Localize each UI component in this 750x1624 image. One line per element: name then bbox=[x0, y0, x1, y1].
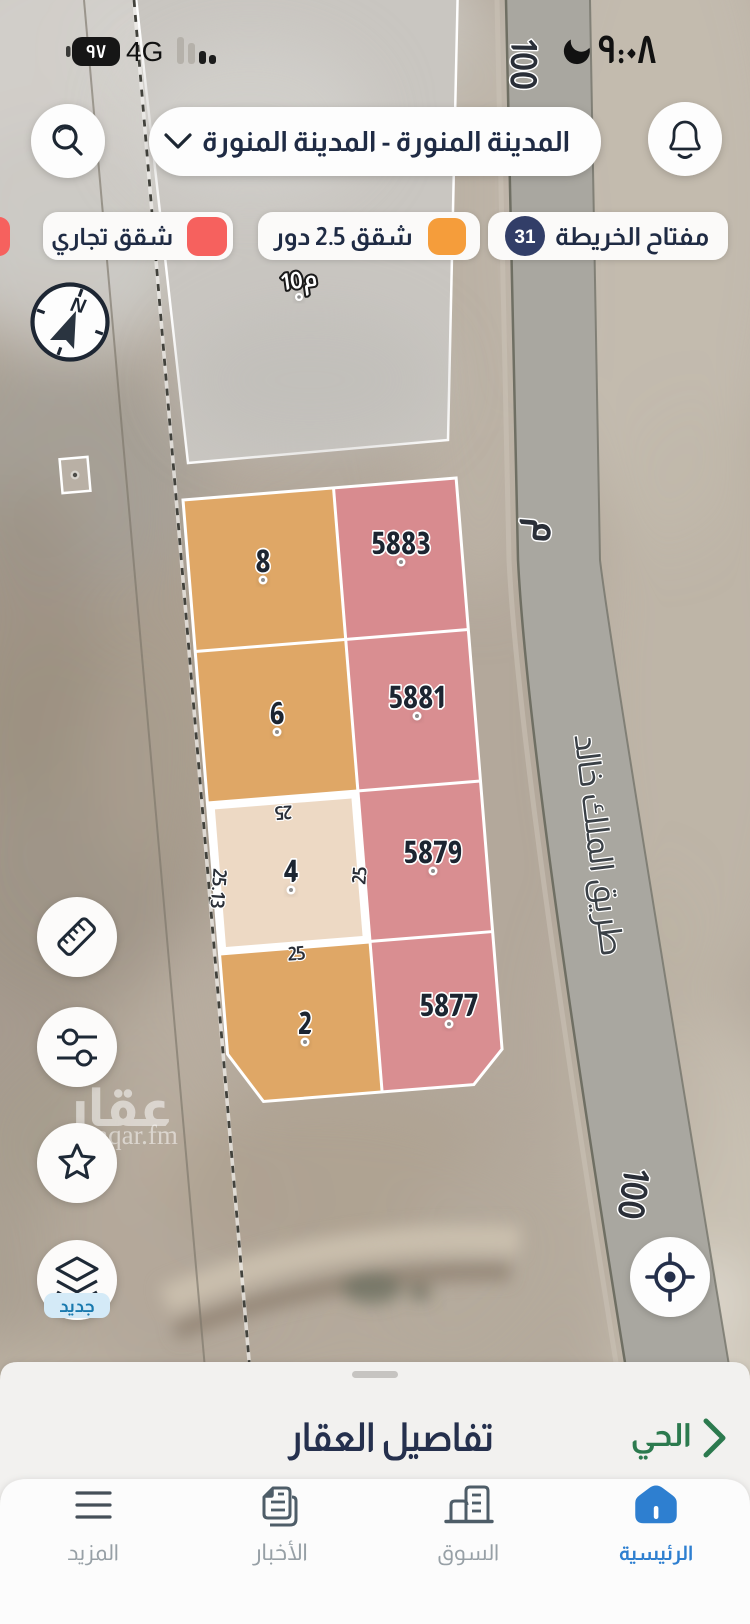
svg-text:4G: 4G bbox=[126, 36, 163, 67]
svg-text:31: 31 bbox=[514, 227, 536, 248]
